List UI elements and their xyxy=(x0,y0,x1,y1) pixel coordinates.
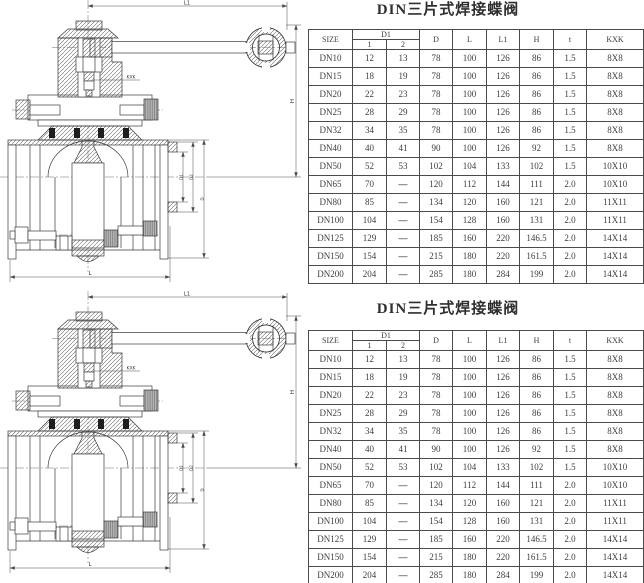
value-cell: 284 xyxy=(487,266,520,284)
value-cell: 2.0 xyxy=(554,230,587,248)
size-cell: DN20 xyxy=(309,86,353,104)
col-header-l: L xyxy=(453,331,487,351)
value-cell: 160 xyxy=(487,495,520,513)
value-cell: 1.5 xyxy=(554,459,587,477)
value-cell: 14X14 xyxy=(587,531,644,549)
col-header-d: D xyxy=(420,331,453,351)
catalog-page: L1 H L KXK D1 D2 D DIN三片式焊接蝶阀 xyxy=(0,0,644,583)
value-cell: 78 xyxy=(420,68,453,86)
value-cell: 144 xyxy=(487,176,520,194)
table-row: DN100104—1541281601312.011X11 xyxy=(309,212,644,230)
value-cell: 29 xyxy=(387,104,420,122)
value-cell: 131 xyxy=(520,212,554,230)
value-cell: 1.5 xyxy=(554,122,587,140)
value-cell: 14X14 xyxy=(587,266,644,284)
value-cell: 28 xyxy=(353,405,387,423)
table-title-bottom: DIN三片式焊接蝶阀 xyxy=(308,301,644,318)
value-cell: 78 xyxy=(420,405,453,423)
value-cell: 126 xyxy=(487,122,520,140)
value-cell: 78 xyxy=(420,387,453,405)
size-cell: DN125 xyxy=(309,531,353,549)
col-header-size: SIZE xyxy=(309,331,353,351)
value-cell: 35 xyxy=(387,122,420,140)
value-cell: 70 xyxy=(353,176,387,194)
table-body: DN10121378100126861.58X8DN15181978100126… xyxy=(309,50,644,284)
value-cell: 285 xyxy=(420,266,453,284)
value-cell: 2.0 xyxy=(554,513,587,531)
size-cell: DN10 xyxy=(309,50,353,68)
value-cell: 18 xyxy=(353,68,387,86)
value-cell: 2.0 xyxy=(554,176,587,194)
value-cell: 160 xyxy=(487,513,520,531)
value-cell: 146.5 xyxy=(520,230,554,248)
value-cell: 128 xyxy=(453,513,487,531)
value-cell: 86 xyxy=(520,369,554,387)
value-cell: 102 xyxy=(420,158,453,176)
value-cell: 34 xyxy=(353,423,387,441)
value-cell: 126 xyxy=(487,140,520,158)
value-cell: 23 xyxy=(387,387,420,405)
value-cell: 41 xyxy=(387,140,420,158)
value-cell: 284 xyxy=(487,567,520,583)
size-cell: DN80 xyxy=(309,495,353,513)
value-cell: 199 xyxy=(520,266,554,284)
value-cell: 53 xyxy=(387,158,420,176)
table-body: DN10121378100126861.58X8DN15181978100126… xyxy=(309,351,644,583)
value-cell: 126 xyxy=(487,351,520,369)
col-header-h: H xyxy=(520,331,554,351)
value-cell: 23 xyxy=(387,86,420,104)
table-row: DN15181978100126861.58X8 xyxy=(309,68,644,86)
value-cell: 22 xyxy=(353,387,387,405)
size-cell: DN150 xyxy=(309,549,353,567)
value-cell: 100 xyxy=(453,50,487,68)
col-header-t: t xyxy=(554,30,587,50)
table-row: DN40404190100126921.58X8 xyxy=(309,140,644,158)
value-cell: 28 xyxy=(353,104,387,122)
value-cell: 100 xyxy=(453,351,487,369)
value-cell: 8X8 xyxy=(587,423,644,441)
table-header: SIZE D1 D L L1 H t KXK 1 2 xyxy=(309,30,644,50)
table-header: SIZE D1 D L L1 H t KXK 1 2 xyxy=(309,331,644,351)
value-cell: 18 xyxy=(353,369,387,387)
value-cell: — xyxy=(387,248,420,266)
value-cell: 86 xyxy=(520,122,554,140)
spec-section-top: DIN三片式焊接蝶阀 SIZE D1 D L L1 H t KXK xyxy=(308,2,644,284)
size-cell: DN32 xyxy=(309,122,353,140)
value-cell: 52 xyxy=(353,459,387,477)
size-cell: DN40 xyxy=(309,140,353,158)
table-row: DN25282978100126861.58X8 xyxy=(309,405,644,423)
value-cell: 126 xyxy=(487,405,520,423)
value-cell: 1.5 xyxy=(554,351,587,369)
value-cell: 126 xyxy=(487,387,520,405)
value-cell: — xyxy=(387,567,420,583)
col-header-d1: D1 xyxy=(353,331,420,341)
table-row: DN20222378100126861.58X8 xyxy=(309,387,644,405)
table-row: DN40404190100126921.58X8 xyxy=(309,441,644,459)
value-cell: 1.5 xyxy=(554,50,587,68)
value-cell: 134 xyxy=(420,194,453,212)
value-cell: 1.5 xyxy=(554,86,587,104)
col-header-t: t xyxy=(554,331,587,351)
value-cell: 1.5 xyxy=(554,68,587,86)
value-cell: 2.0 xyxy=(554,531,587,549)
value-cell: 2.0 xyxy=(554,266,587,284)
value-cell: 112 xyxy=(453,176,487,194)
table-row: DN125129—185160220146.52.014X14 xyxy=(309,531,644,549)
value-cell: 220 xyxy=(487,549,520,567)
value-cell: 104 xyxy=(453,459,487,477)
size-cell: DN50 xyxy=(309,158,353,176)
size-cell: DN150 xyxy=(309,248,353,266)
value-cell: 1.5 xyxy=(554,387,587,405)
size-cell: DN200 xyxy=(309,567,353,583)
value-cell: 78 xyxy=(420,86,453,104)
col-header-h: H xyxy=(520,30,554,50)
table-row: DN15181978100126861.58X8 xyxy=(309,369,644,387)
table-row: DN20222378100126861.58X8 xyxy=(309,86,644,104)
valve-technical-drawing xyxy=(0,291,310,583)
size-cell: DN40 xyxy=(309,441,353,459)
value-cell: — xyxy=(387,212,420,230)
value-cell: 160 xyxy=(487,212,520,230)
value-cell: 199 xyxy=(520,567,554,583)
value-cell: 100 xyxy=(453,122,487,140)
value-cell: 180 xyxy=(453,248,487,266)
table-row: DN5052531021041331021.510X10 xyxy=(309,158,644,176)
value-cell: 111 xyxy=(520,477,554,495)
value-cell: — xyxy=(387,513,420,531)
table-row: DN10121378100126861.58X8 xyxy=(309,50,644,68)
table-row: DN32343578100126861.58X8 xyxy=(309,122,644,140)
value-cell: 11X11 xyxy=(587,212,644,230)
col-header-l: L xyxy=(453,30,487,50)
value-cell: 86 xyxy=(520,68,554,86)
value-cell: 86 xyxy=(520,86,554,104)
size-cell: DN50 xyxy=(309,459,353,477)
value-cell: 180 xyxy=(453,567,487,583)
value-cell: 154 xyxy=(420,513,453,531)
value-cell: 111 xyxy=(520,176,554,194)
value-cell: 1.5 xyxy=(554,441,587,459)
value-cell: 120 xyxy=(453,194,487,212)
value-cell: 8X8 xyxy=(587,140,644,158)
value-cell: 41 xyxy=(387,441,420,459)
value-cell: 104 xyxy=(353,513,387,531)
value-cell: 100 xyxy=(453,68,487,86)
value-cell: 40 xyxy=(353,441,387,459)
table-row: DN8085—1341201601212.011X11 xyxy=(309,194,644,212)
value-cell: 2.0 xyxy=(554,194,587,212)
value-cell: 90 xyxy=(420,441,453,459)
value-cell: — xyxy=(387,477,420,495)
size-cell: DN100 xyxy=(309,513,353,531)
value-cell: 215 xyxy=(420,549,453,567)
value-cell: 131 xyxy=(520,513,554,531)
col-header-l1: L1 xyxy=(487,331,520,351)
value-cell: 10X10 xyxy=(587,158,644,176)
value-cell: 100 xyxy=(453,86,487,104)
table-row: DN150154—215180220161.52.014X14 xyxy=(309,248,644,266)
value-cell: 160 xyxy=(487,194,520,212)
value-cell: 85 xyxy=(353,194,387,212)
value-cell: 104 xyxy=(353,212,387,230)
value-cell: 35 xyxy=(387,423,420,441)
header-row-1: SIZE D1 D L L1 H t KXK xyxy=(309,331,644,341)
value-cell: 1.5 xyxy=(554,405,587,423)
value-cell: 8X8 xyxy=(587,122,644,140)
value-cell: 126 xyxy=(487,86,520,104)
col-header-d1-1: 1 xyxy=(353,40,387,50)
size-cell: DN10 xyxy=(309,351,353,369)
value-cell: 2.0 xyxy=(554,248,587,266)
value-cell: 2.0 xyxy=(554,549,587,567)
value-cell: 2.0 xyxy=(554,567,587,583)
value-cell: 126 xyxy=(487,369,520,387)
table-row: DN125129—185160220146.52.014X14 xyxy=(309,230,644,248)
value-cell: 19 xyxy=(387,369,420,387)
col-header-d1-2: 2 xyxy=(387,40,420,50)
value-cell: 180 xyxy=(453,549,487,567)
value-cell: 160 xyxy=(453,531,487,549)
value-cell: 220 xyxy=(487,531,520,549)
value-cell: 8X8 xyxy=(587,104,644,122)
value-cell: 14X14 xyxy=(587,248,644,266)
value-cell: 126 xyxy=(487,423,520,441)
value-cell: 121 xyxy=(520,194,554,212)
value-cell: 100 xyxy=(453,140,487,158)
value-cell: 86 xyxy=(520,387,554,405)
value-cell: 86 xyxy=(520,104,554,122)
value-cell: 102 xyxy=(520,158,554,176)
size-cell: DN15 xyxy=(309,369,353,387)
value-cell: 220 xyxy=(487,230,520,248)
value-cell: 14X14 xyxy=(587,549,644,567)
value-cell: 100 xyxy=(453,441,487,459)
value-cell: 1.5 xyxy=(554,158,587,176)
value-cell: 1.5 xyxy=(554,369,587,387)
value-cell: 85 xyxy=(353,495,387,513)
value-cell: 185 xyxy=(420,531,453,549)
value-cell: 13 xyxy=(387,351,420,369)
value-cell: 129 xyxy=(353,230,387,248)
value-cell: 104 xyxy=(453,158,487,176)
value-cell: 92 xyxy=(520,441,554,459)
size-cell: DN125 xyxy=(309,230,353,248)
value-cell: 13 xyxy=(387,50,420,68)
spec-table-top: SIZE D1 D L L1 H t KXK 1 2 DN10121378100… xyxy=(308,29,644,284)
size-cell: DN20 xyxy=(309,387,353,405)
value-cell: 8X8 xyxy=(587,351,644,369)
value-cell: 1.5 xyxy=(554,423,587,441)
value-cell: 160 xyxy=(453,230,487,248)
value-cell: 92 xyxy=(520,140,554,158)
size-cell: DN25 xyxy=(309,405,353,423)
value-cell: 126 xyxy=(487,441,520,459)
value-cell: 185 xyxy=(420,230,453,248)
value-cell: 134 xyxy=(420,495,453,513)
table-row: DN6570—1201121441112.010X10 xyxy=(309,176,644,194)
col-header-d: D xyxy=(420,30,453,50)
valve-drawing-bottom xyxy=(0,291,310,583)
valve-technical-drawing xyxy=(0,0,310,292)
value-cell: 40 xyxy=(353,140,387,158)
value-cell: 78 xyxy=(420,122,453,140)
value-cell: 86 xyxy=(520,351,554,369)
value-cell: 2.0 xyxy=(554,495,587,513)
value-cell: 78 xyxy=(420,351,453,369)
table-row: DN150154—215180220161.52.014X14 xyxy=(309,549,644,567)
col-header-d1-2: 2 xyxy=(387,341,420,351)
value-cell: 129 xyxy=(353,531,387,549)
value-cell: 10X10 xyxy=(587,176,644,194)
value-cell: 29 xyxy=(387,405,420,423)
value-cell: 8X8 xyxy=(587,369,644,387)
value-cell: 126 xyxy=(487,104,520,122)
value-cell: 78 xyxy=(420,104,453,122)
value-cell: — xyxy=(387,531,420,549)
col-header-kxk: KXK xyxy=(587,30,644,50)
value-cell: 8X8 xyxy=(587,86,644,104)
value-cell: 11X11 xyxy=(587,495,644,513)
value-cell: 128 xyxy=(453,212,487,230)
value-cell: 14X14 xyxy=(587,230,644,248)
value-cell: 11X11 xyxy=(587,513,644,531)
value-cell: 204 xyxy=(353,567,387,583)
value-cell: 19 xyxy=(387,68,420,86)
value-cell: 100 xyxy=(453,104,487,122)
value-cell: — xyxy=(387,230,420,248)
value-cell: 154 xyxy=(353,248,387,266)
table-row: DN200204—2851802841992.014X14 xyxy=(309,266,644,284)
value-cell: 86 xyxy=(520,50,554,68)
value-cell: 154 xyxy=(420,212,453,230)
value-cell: 133 xyxy=(487,158,520,176)
size-cell: DN65 xyxy=(309,477,353,495)
value-cell: 100 xyxy=(453,387,487,405)
value-cell: 8X8 xyxy=(587,441,644,459)
value-cell: 10X10 xyxy=(587,477,644,495)
col-header-kxk: KXK xyxy=(587,331,644,351)
size-cell: DN15 xyxy=(309,68,353,86)
table-row: DN200204—2851802841992.014X14 xyxy=(309,567,644,583)
value-cell: 1.5 xyxy=(554,140,587,158)
value-cell: 8X8 xyxy=(587,68,644,86)
value-cell: — xyxy=(387,176,420,194)
value-cell: 120 xyxy=(420,477,453,495)
value-cell: 86 xyxy=(520,423,554,441)
value-cell: 86 xyxy=(520,405,554,423)
value-cell: 8X8 xyxy=(587,50,644,68)
table-row: DN8085—1341201601212.011X11 xyxy=(309,495,644,513)
valve-drawing-top xyxy=(0,0,310,292)
spec-table-bottom: SIZE D1 D L L1 H t KXK 1 2 DN10121378100… xyxy=(308,330,644,583)
value-cell: 22 xyxy=(353,86,387,104)
value-cell: — xyxy=(387,495,420,513)
value-cell: 285 xyxy=(420,567,453,583)
size-cell: DN200 xyxy=(309,266,353,284)
value-cell: 70 xyxy=(353,477,387,495)
value-cell: 8X8 xyxy=(587,387,644,405)
value-cell: 12 xyxy=(353,50,387,68)
table-row: DN6570—1201121441112.010X10 xyxy=(309,477,644,495)
value-cell: 121 xyxy=(520,495,554,513)
value-cell: 11X11 xyxy=(587,194,644,212)
table-row: DN5052531021041331021.510X10 xyxy=(309,459,644,477)
col-header-l1: L1 xyxy=(487,30,520,50)
col-header-size: SIZE xyxy=(309,30,353,50)
value-cell: 90 xyxy=(420,140,453,158)
value-cell: 220 xyxy=(487,248,520,266)
value-cell: 126 xyxy=(487,50,520,68)
value-cell: 2.0 xyxy=(554,477,587,495)
value-cell: 112 xyxy=(453,477,487,495)
value-cell: 53 xyxy=(387,459,420,477)
value-cell: 52 xyxy=(353,158,387,176)
table-title-top: DIN三片式焊接蝶阀 xyxy=(308,2,644,19)
value-cell: — xyxy=(387,549,420,567)
value-cell: 161.5 xyxy=(520,549,554,567)
value-cell: — xyxy=(387,266,420,284)
value-cell: 12 xyxy=(353,351,387,369)
value-cell: 204 xyxy=(353,266,387,284)
col-header-d1: D1 xyxy=(353,30,420,40)
table-row: DN25282978100126861.58X8 xyxy=(309,104,644,122)
table-row: DN10121378100126861.58X8 xyxy=(309,351,644,369)
value-cell: 120 xyxy=(453,495,487,513)
header-row-1: SIZE D1 D L L1 H t KXK xyxy=(309,30,644,40)
value-cell: 10X10 xyxy=(587,459,644,477)
value-cell: 8X8 xyxy=(587,405,644,423)
value-cell: 215 xyxy=(420,248,453,266)
col-header-d1-1: 1 xyxy=(353,341,387,351)
value-cell: 2.0 xyxy=(554,212,587,230)
spec-section-bottom: DIN三片式焊接蝶阀 SIZE D1 D L L1 H t KXK xyxy=(308,301,644,583)
value-cell: 133 xyxy=(487,459,520,477)
size-cell: DN100 xyxy=(309,212,353,230)
value-cell: 34 xyxy=(353,122,387,140)
value-cell: 1.5 xyxy=(554,104,587,122)
value-cell: 126 xyxy=(487,68,520,86)
size-cell: DN32 xyxy=(309,423,353,441)
value-cell: 78 xyxy=(420,423,453,441)
value-cell: 180 xyxy=(453,266,487,284)
table-row: DN32343578100126861.58X8 xyxy=(309,423,644,441)
value-cell: 100 xyxy=(453,369,487,387)
size-cell: DN25 xyxy=(309,104,353,122)
value-cell: 100 xyxy=(453,423,487,441)
value-cell: 144 xyxy=(487,477,520,495)
value-cell: 78 xyxy=(420,50,453,68)
value-cell: — xyxy=(387,194,420,212)
value-cell: 154 xyxy=(353,549,387,567)
value-cell: 100 xyxy=(453,405,487,423)
value-cell: 120 xyxy=(420,176,453,194)
value-cell: 102 xyxy=(420,459,453,477)
value-cell: 146.5 xyxy=(520,531,554,549)
size-cell: DN65 xyxy=(309,176,353,194)
value-cell: 102 xyxy=(520,459,554,477)
table-row: DN100104—1541281601312.011X11 xyxy=(309,513,644,531)
size-cell: DN80 xyxy=(309,194,353,212)
value-cell: 161.5 xyxy=(520,248,554,266)
value-cell: 78 xyxy=(420,369,453,387)
value-cell: 14X14 xyxy=(587,567,644,583)
